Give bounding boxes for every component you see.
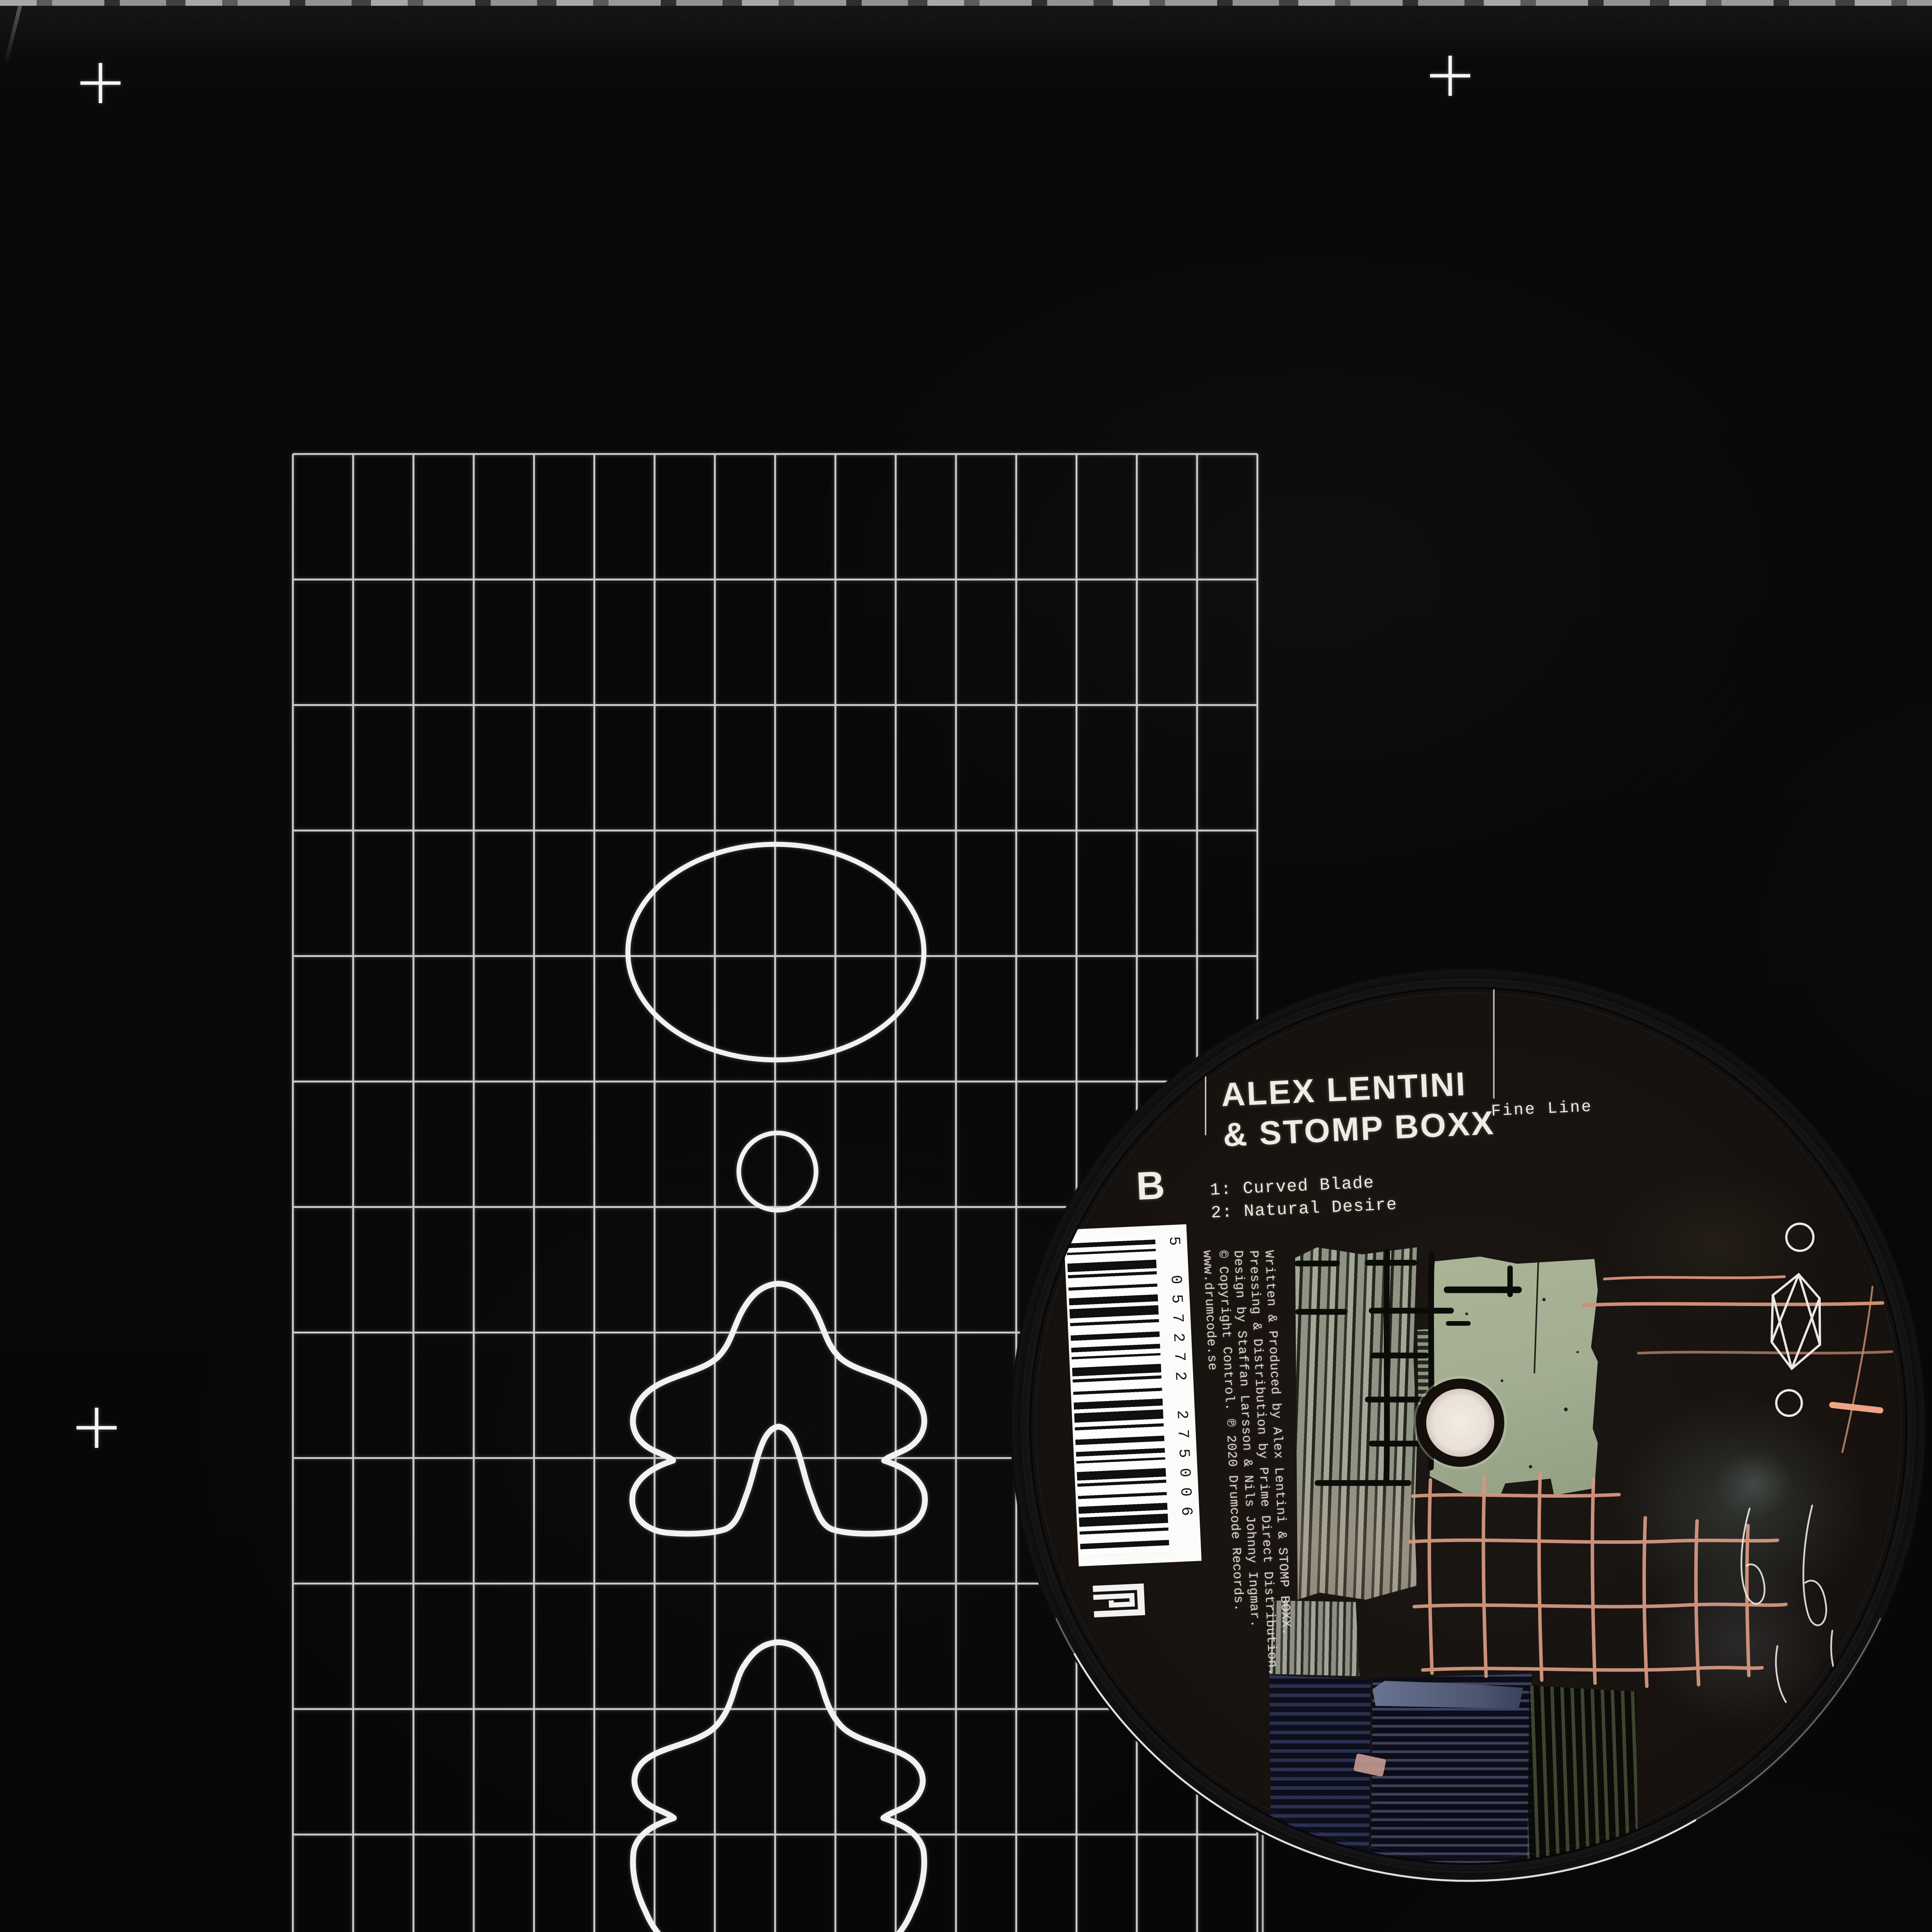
corner-logo-layer	[0, 0, 1932, 1932]
